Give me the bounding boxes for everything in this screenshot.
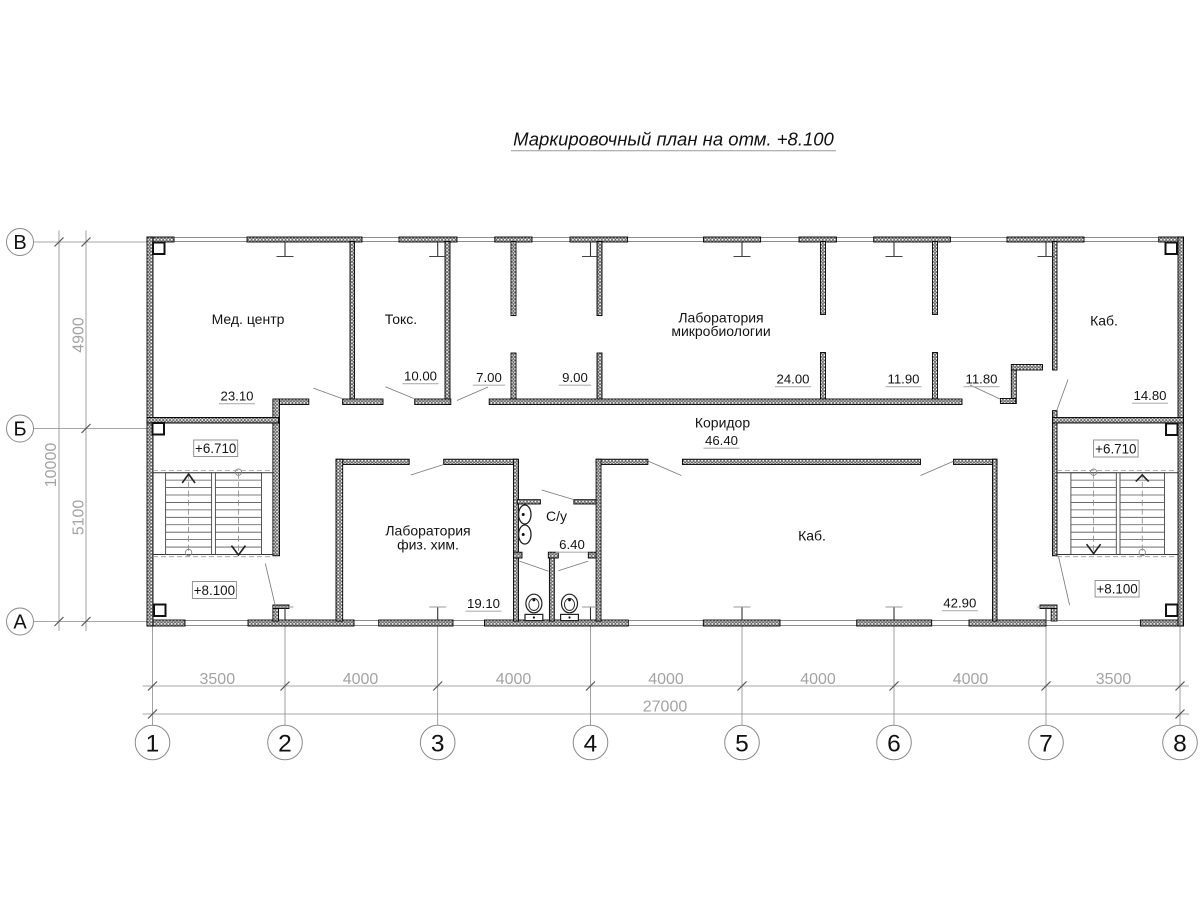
- svg-text:6: 6: [887, 730, 901, 757]
- svg-text:А: А: [13, 612, 27, 634]
- svg-text:микробиологии: микробиологии: [671, 323, 770, 339]
- svg-text:+8.100: +8.100: [1096, 582, 1137, 597]
- svg-text:В: В: [13, 232, 26, 254]
- svg-text:Токс.: Токс.: [385, 311, 417, 327]
- svg-text:физ. хим.: физ. хим.: [397, 537, 459, 553]
- svg-text:4900: 4900: [71, 317, 88, 353]
- svg-text:4000: 4000: [648, 671, 684, 688]
- svg-text:5100: 5100: [71, 500, 88, 536]
- svg-text:Каб.: Каб.: [1090, 313, 1118, 329]
- svg-text:19.10: 19.10: [467, 596, 500, 611]
- svg-text:11.90: 11.90: [887, 372, 919, 387]
- svg-text:24.00: 24.00: [776, 372, 809, 387]
- svg-text:46.40: 46.40: [705, 433, 738, 448]
- svg-text:3500: 3500: [200, 671, 236, 688]
- svg-text:Маркировочный план на отм. +8.: Маркировочный план на отм. +8.100: [513, 129, 834, 150]
- svg-text:10000: 10000: [43, 443, 60, 488]
- svg-text:14.80: 14.80: [1133, 388, 1166, 403]
- svg-text:7: 7: [1039, 730, 1053, 757]
- svg-text:23.10: 23.10: [220, 389, 253, 404]
- svg-text:С/у: С/у: [546, 508, 567, 524]
- svg-text:9.00: 9.00: [562, 370, 588, 385]
- svg-text:4000: 4000: [953, 671, 989, 688]
- svg-text:42.90: 42.90: [943, 596, 976, 611]
- svg-text:Каб.: Каб.: [798, 528, 826, 544]
- svg-text:8: 8: [1173, 730, 1187, 757]
- svg-text:4000: 4000: [343, 671, 379, 688]
- svg-text:27000: 27000: [643, 699, 688, 716]
- svg-text:+8.100: +8.100: [194, 583, 235, 598]
- svg-text:4000: 4000: [800, 671, 836, 688]
- svg-text:+6.710: +6.710: [195, 441, 236, 456]
- svg-text:3: 3: [431, 730, 445, 757]
- svg-text:Б: Б: [13, 419, 26, 441]
- svg-text:4000: 4000: [496, 671, 532, 688]
- svg-text:2: 2: [278, 730, 292, 757]
- svg-text:3500: 3500: [1096, 671, 1132, 688]
- svg-text:6.40: 6.40: [559, 537, 585, 552]
- svg-text:10.00: 10.00: [404, 369, 437, 384]
- svg-text:11.80: 11.80: [965, 372, 997, 387]
- svg-text:5: 5: [735, 730, 749, 757]
- svg-text:Коридор: Коридор: [695, 415, 751, 431]
- svg-text:+6.710: +6.710: [1095, 441, 1136, 456]
- svg-text:4: 4: [584, 730, 598, 757]
- svg-text:1: 1: [146, 730, 160, 757]
- svg-text:7.00: 7.00: [476, 370, 502, 385]
- svg-text:Мед. центр: Мед. центр: [212, 311, 285, 327]
